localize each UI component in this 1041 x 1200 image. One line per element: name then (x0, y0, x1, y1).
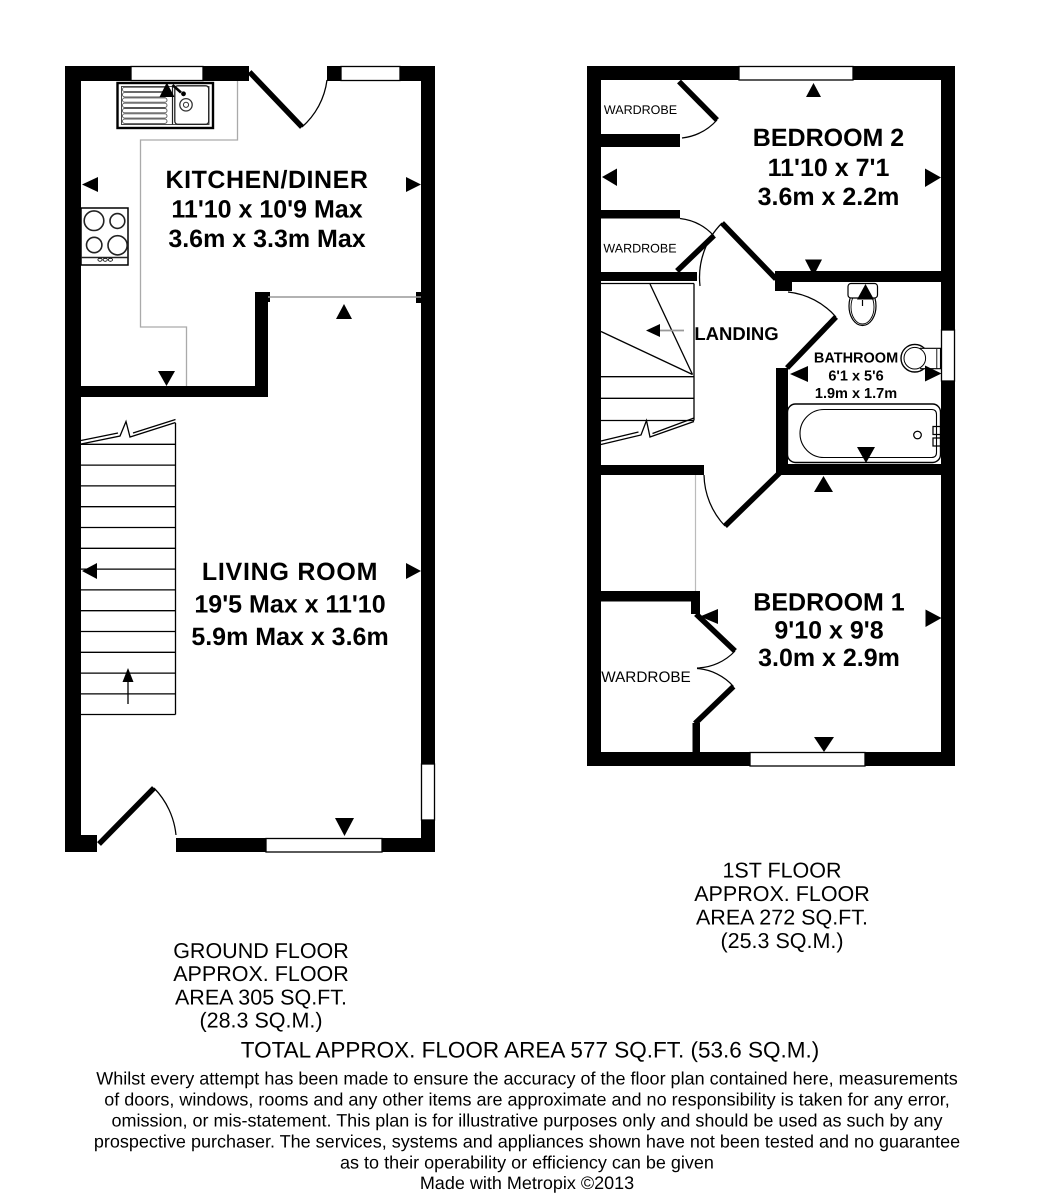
svg-text:9'10 x 9'8: 9'10 x 9'8 (774, 617, 883, 645)
svg-text:prospective purchaser. The ser: prospective purchaser. The services, sys… (94, 1132, 960, 1152)
svg-text:KITCHEN/DINER: KITCHEN/DINER (166, 166, 369, 194)
svg-text:(28.3 SQ.M.): (28.3 SQ.M.) (199, 1009, 322, 1033)
svg-text:6'1 x 5'6: 6'1 x 5'6 (828, 369, 883, 385)
svg-text:1.9m x 1.7m: 1.9m x 1.7m (815, 386, 897, 402)
svg-text:BEDROOM 1: BEDROOM 1 (753, 589, 905, 617)
svg-text:LANDING: LANDING (694, 323, 778, 344)
svg-text:(25.3 SQ.M.): (25.3 SQ.M.) (720, 929, 843, 953)
svg-text:TOTAL APPROX. FLOOR AREA 577 S: TOTAL APPROX. FLOOR AREA 577 SQ.FT. (53.… (241, 1038, 820, 1063)
svg-text:GROUND FLOOR: GROUND FLOOR (173, 939, 349, 963)
svg-text:BEDROOM 2: BEDROOM 2 (753, 124, 904, 152)
svg-text:Made with Metropix ©2013: Made with Metropix ©2013 (420, 1173, 634, 1193)
svg-text:Whilst every attempt has been: Whilst every attempt has been made to en… (96, 1069, 957, 1089)
svg-text:as to their operability or eff: as to their operability or efficiency ca… (340, 1153, 714, 1173)
svg-text:WARDROBE: WARDROBE (601, 669, 691, 686)
svg-text:3.6m x 2.2m: 3.6m x 2.2m (758, 183, 900, 211)
svg-text:WARDROBE: WARDROBE (603, 242, 676, 256)
svg-text:WARDROBE: WARDROBE (604, 103, 677, 117)
svg-text:LIVING ROOM: LIVING ROOM (202, 558, 378, 586)
svg-text:5.9m Max x 3.6m: 5.9m Max x 3.6m (191, 623, 388, 651)
svg-text:11'10 x 10'9 Max: 11'10 x 10'9 Max (171, 196, 362, 224)
svg-text:omission, or mis-statement. Th: omission, or mis-statement. This plan is… (111, 1111, 942, 1131)
svg-text:AREA 272 SQ.FT.: AREA 272 SQ.FT. (696, 906, 868, 930)
svg-text:19'5 Max x 11'10: 19'5 Max x 11'10 (194, 591, 385, 619)
svg-text:AREA 305 SQ.FT.: AREA 305 SQ.FT. (175, 986, 347, 1010)
svg-text:APPROX. FLOOR: APPROX. FLOOR (694, 882, 870, 906)
svg-text:APPROX. FLOOR: APPROX. FLOOR (173, 962, 349, 986)
svg-text:3.0m x 2.9m: 3.0m x 2.9m (758, 644, 900, 672)
svg-text:of doors, windows, rooms and a: of doors, windows, rooms and any other i… (104, 1090, 949, 1110)
svg-text:11'10 x 7'1: 11'10 x 7'1 (768, 154, 890, 182)
svg-text:BATHROOM: BATHROOM (814, 351, 898, 367)
svg-text:3.6m x 3.3m Max: 3.6m x 3.3m Max (168, 225, 365, 253)
svg-text:1ST FLOOR: 1ST FLOOR (722, 859, 841, 883)
